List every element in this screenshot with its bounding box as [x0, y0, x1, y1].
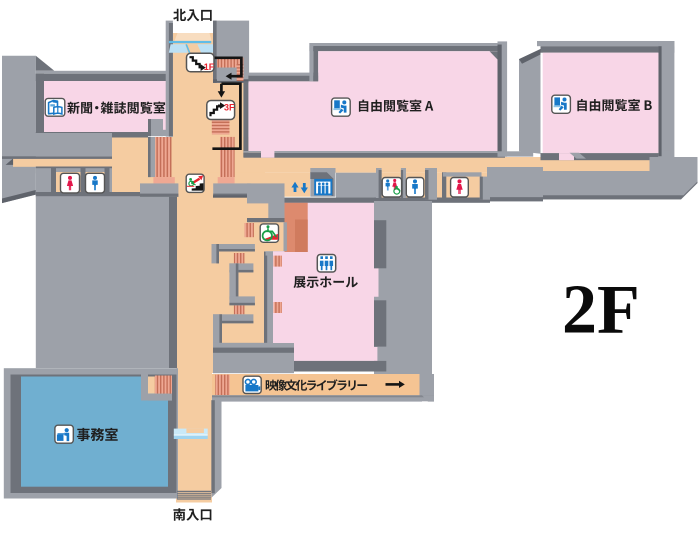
svg-text:3F: 3F: [224, 102, 235, 112]
svg-text:1F: 1F: [204, 62, 215, 72]
svg-text:2F: 2F: [562, 272, 640, 349]
